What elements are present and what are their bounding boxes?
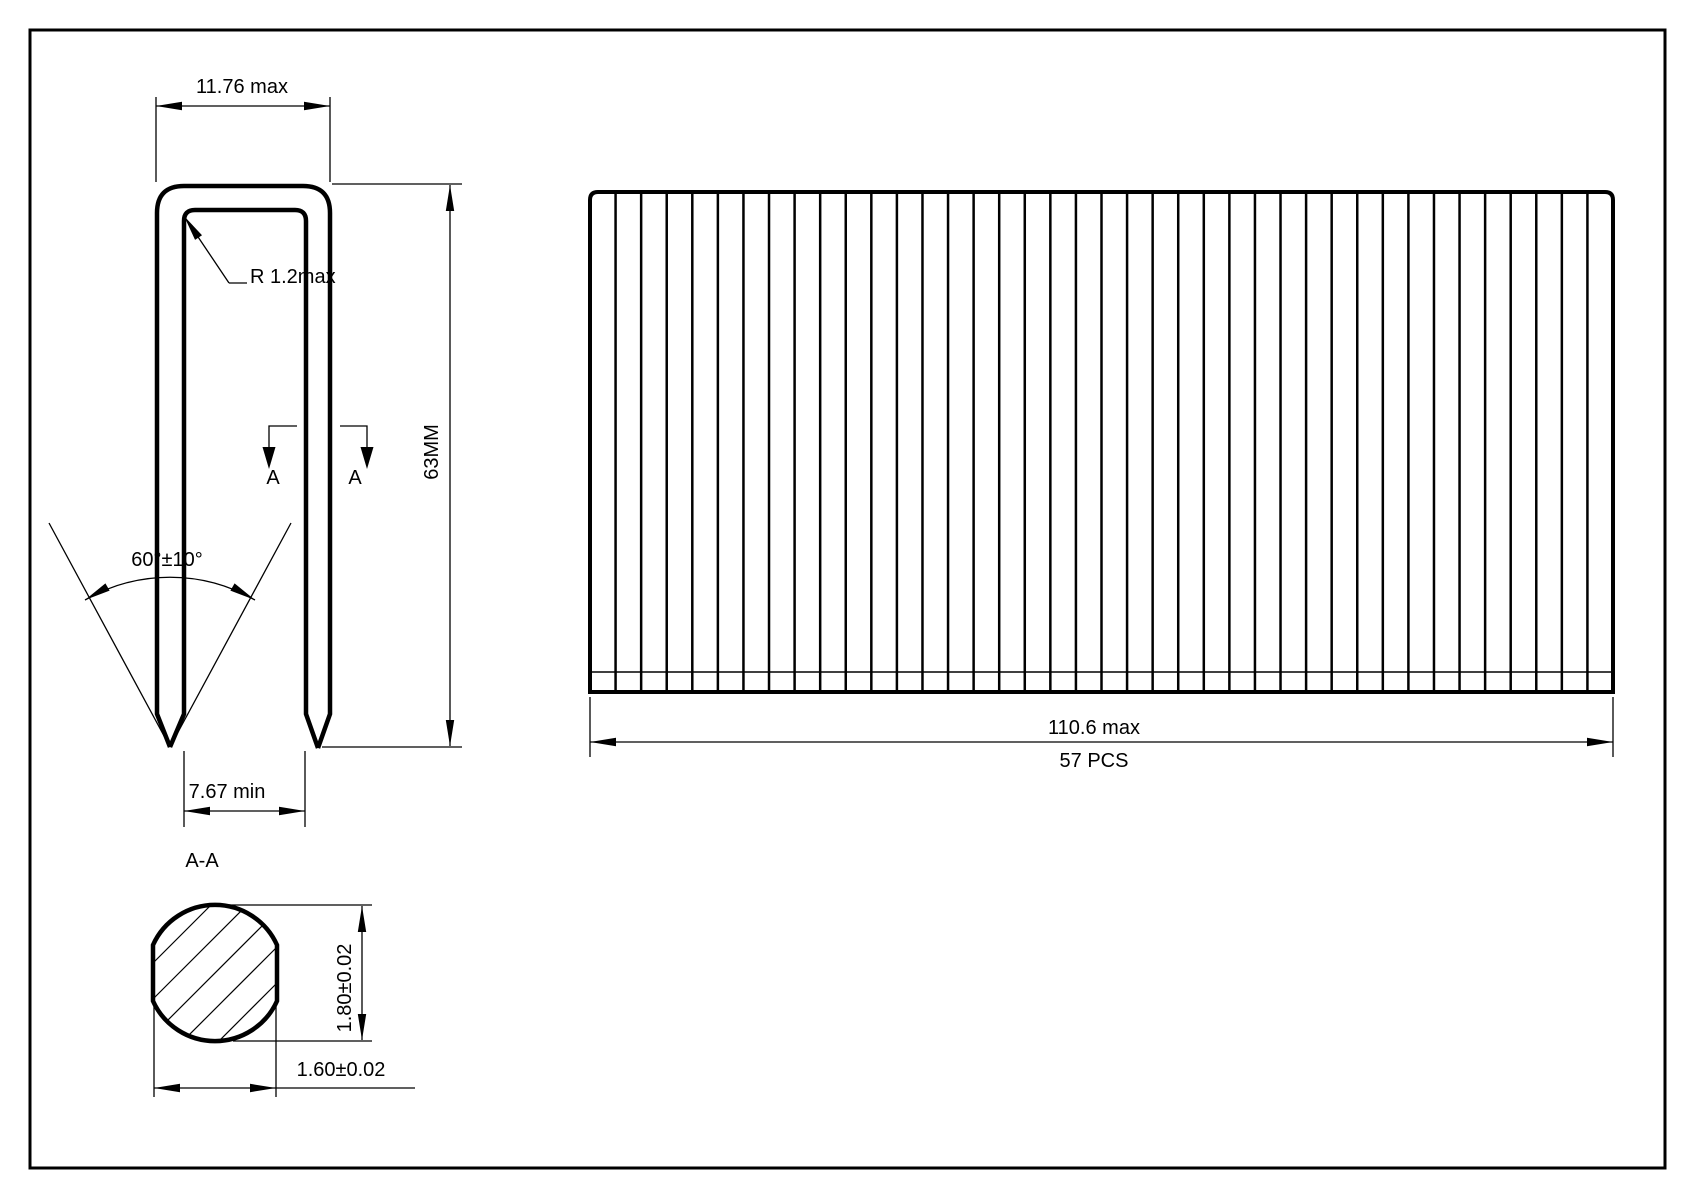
section-arrow-right xyxy=(361,447,374,469)
technical-drawing-canvas: 11.76 max R 1.2max 63MM 60°±10° A A xyxy=(0,0,1697,1202)
dimension-wire-width: 1.60±0.02 xyxy=(154,1003,415,1097)
radius-label: R 1.2max xyxy=(250,266,336,288)
inside-span-label: 7.67 min xyxy=(189,781,266,803)
point-angle-label: 60°±10° xyxy=(131,549,202,571)
section-marker-right-label: A xyxy=(348,467,362,489)
arrowhead-bottom xyxy=(358,1014,366,1040)
hatch-line xyxy=(167,925,263,1021)
section-title-label: A-A xyxy=(185,850,219,872)
strip-length-label: 110.6 max xyxy=(1048,717,1140,739)
section-marker-line-left xyxy=(269,426,297,447)
section-view-aa: A-A 1.80±0.02 1.60±0.02 xyxy=(153,850,415,1097)
dimension-corner-radius: R 1.2max xyxy=(181,214,336,288)
dimension-crown-width: 11.76 max xyxy=(156,76,330,182)
arrowhead-left xyxy=(154,1084,180,1092)
arrowhead-right xyxy=(304,102,330,110)
arrowhead-top xyxy=(446,185,454,211)
dimension-leg-length: 63MM xyxy=(322,184,462,747)
section-marker-line-right xyxy=(340,426,367,447)
dimension-inside-span: 7.67 min xyxy=(184,751,305,827)
leg-length-label: 63MM xyxy=(421,424,443,480)
arrowhead-left xyxy=(156,102,182,110)
section-cut-markers: A A xyxy=(263,426,374,489)
arrowhead-right xyxy=(1587,738,1613,746)
arrowhead-bottom xyxy=(446,720,454,746)
arrowhead-left xyxy=(184,807,210,815)
arrowhead-left xyxy=(590,738,616,746)
strip-pieces-label: 57 PCS xyxy=(1060,750,1129,772)
drawing-page: 11.76 max R 1.2max 63MM 60°±10° A A xyxy=(0,0,1697,1202)
angle-arc xyxy=(85,577,255,600)
staple-strip-view xyxy=(590,192,1613,692)
wire-width-label: 1.60±0.02 xyxy=(297,1059,386,1081)
dimension-strip-length: 110.6 max 57 PCS xyxy=(590,697,1613,772)
staple-strip-lines xyxy=(616,194,1588,690)
crown-width-label: 11.76 max xyxy=(196,76,288,98)
arrowhead-top xyxy=(358,906,366,932)
arrowhead-right xyxy=(250,1084,276,1092)
wire-height-label: 1.80±0.02 xyxy=(334,944,356,1033)
dimension-wire-height: 1.80±0.02 xyxy=(225,905,372,1041)
section-arrow-left xyxy=(263,447,276,469)
cross-section-hatching xyxy=(153,905,277,1041)
staple-inner-contour xyxy=(170,210,318,748)
dimension-point-angle: 60°±10° xyxy=(49,523,291,747)
arrowhead-right xyxy=(279,807,305,815)
section-marker-left-label: A xyxy=(266,467,280,489)
